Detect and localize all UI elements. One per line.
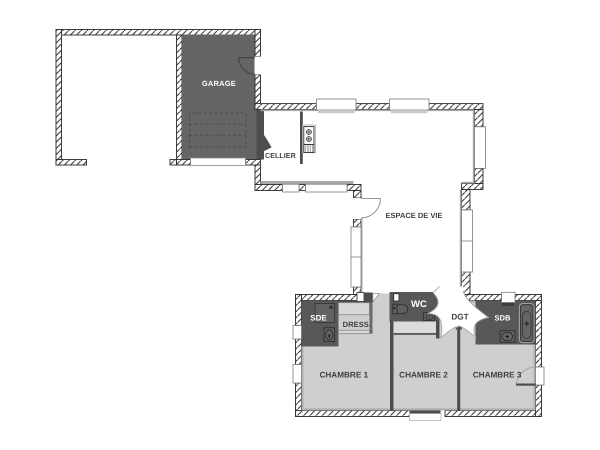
- svg-text:ESPACE DE VIE: ESPACE DE VIE: [386, 211, 443, 220]
- svg-text:CHAMBRE 2: CHAMBRE 2: [399, 371, 448, 380]
- svg-text:WC: WC: [411, 299, 427, 310]
- svg-text:DGT: DGT: [451, 313, 468, 322]
- svg-text:CELLIER: CELLIER: [265, 151, 297, 160]
- svg-text:GARAGE: GARAGE: [202, 79, 236, 88]
- svg-text:CHAMBRE 1: CHAMBRE 1: [319, 371, 368, 380]
- svg-text:CHAMBRE 3: CHAMBRE 3: [473, 371, 522, 380]
- svg-text:SDB: SDB: [494, 313, 511, 322]
- svg-text:DRESS.: DRESS.: [343, 320, 371, 329]
- svg-text:SDE: SDE: [310, 314, 327, 323]
